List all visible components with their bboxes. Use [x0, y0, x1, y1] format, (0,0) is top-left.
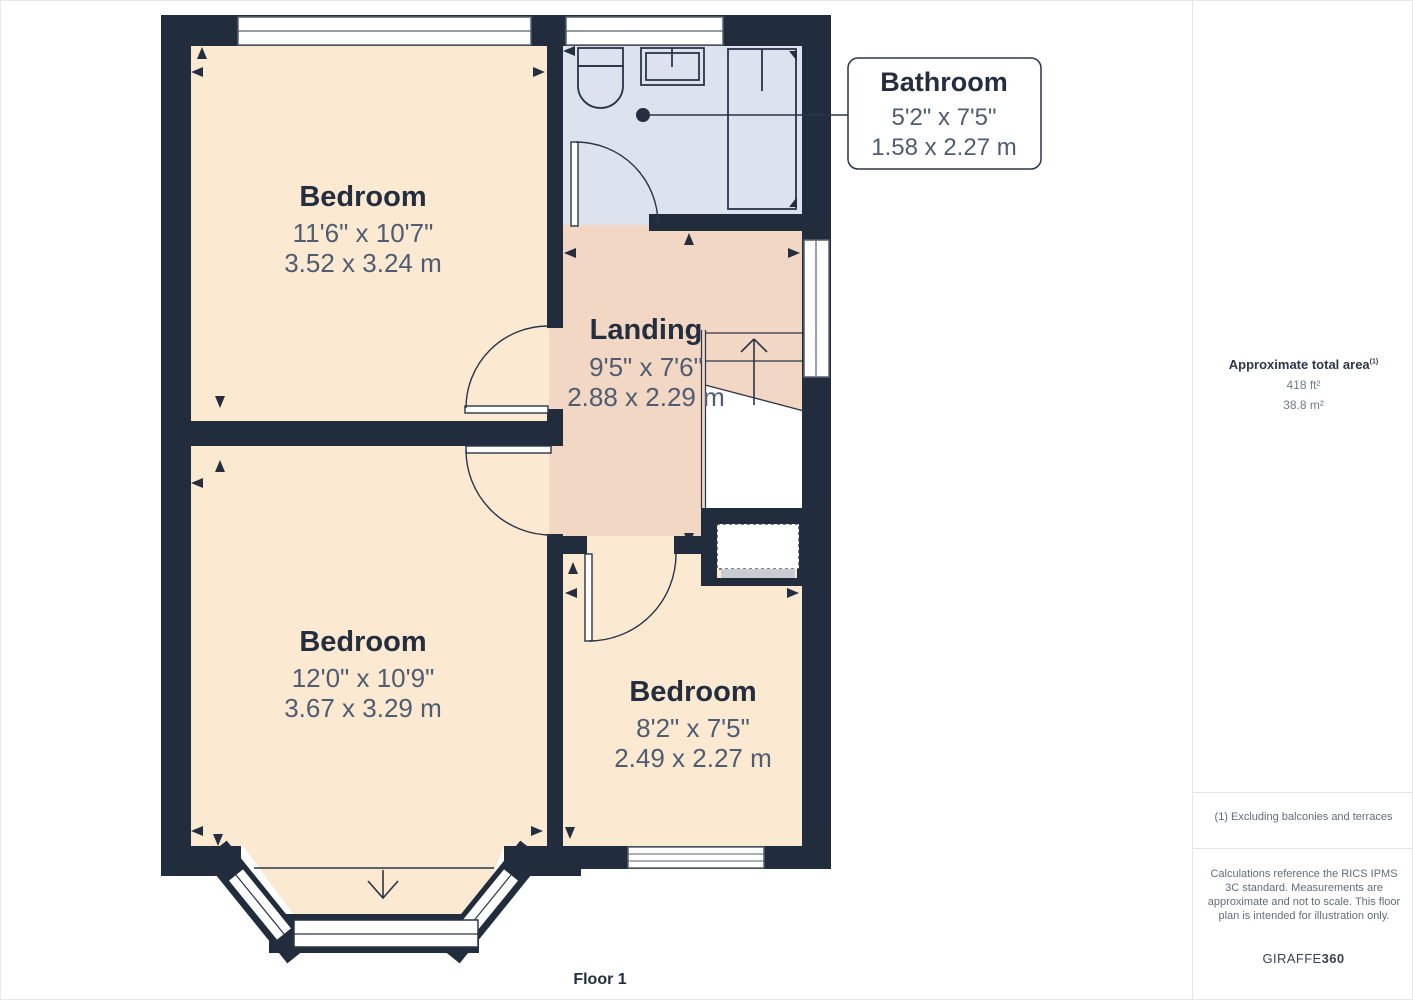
- room-label-bedroom-top-left: Bedroom: [299, 181, 426, 213]
- room-label-bedroom-bottom-right: Bedroom: [629, 676, 756, 708]
- callout-room-name: Bathroom: [880, 67, 1008, 97]
- total-area-title: Approximate total area(1): [1193, 357, 1413, 372]
- room-label-landing: Landing: [590, 314, 703, 346]
- area-footnote: (1) Excluding balconies and terraces: [1193, 811, 1413, 823]
- total-area-ft: 418 ft²: [1193, 378, 1413, 392]
- floorplan-page: Bedroom 11'6" x 10'7" 3.52 x 3.24 m Land…: [0, 0, 1413, 1000]
- sidebar-divider: [1193, 848, 1413, 849]
- callout-dim-metric: 1.58 x 2.27 m: [871, 134, 1016, 161]
- brand-suffix: 360: [1322, 951, 1345, 966]
- total-area-footnote-marker: (1): [1370, 359, 1379, 366]
- window-bottom-bedroom: [628, 847, 764, 868]
- room-dim-metric: 3.67 x 3.29 m: [284, 693, 442, 723]
- info-sidebar: Approximate total area(1) 418 ft² 38.8 m…: [1192, 1, 1413, 1000]
- disclaimer-text: Calculations reference the RICS IPMS 3C …: [1207, 867, 1401, 923]
- total-area-block: Approximate total area(1) 418 ft² 38.8 m…: [1193, 357, 1413, 412]
- total-area-title-text: Approximate total area: [1229, 357, 1370, 372]
- room-dim-imperial: 9'5" x 7'6": [589, 352, 703, 382]
- brand-name: GIRAFFE: [1262, 951, 1321, 966]
- room-dim-imperial: 8'2" x 7'5": [636, 713, 750, 743]
- bathroom-callout: Bathroom 5'2" x 7'5" 1.58 x 2.27 m: [848, 58, 1041, 169]
- room-dim-metric: 2.49 x 2.27 m: [614, 743, 772, 773]
- callout-dim-imperial: 5'2" x 7'5": [892, 104, 997, 131]
- brand-logo: GIRAFFE360: [1193, 951, 1413, 966]
- understairs-hatch: [717, 524, 799, 569]
- room-label-bedroom-bottom-left: Bedroom: [299, 626, 426, 658]
- room-dim-metric: 3.52 x 3.24 m: [284, 248, 442, 278]
- room-dim-metric: 2.88 x 2.29 m: [567, 382, 725, 412]
- floor-plan: Bedroom 11'6" x 10'7" 3.52 x 3.24 m Land…: [1, 1, 1192, 1000]
- room-dim-imperial: 11'6" x 10'7": [293, 218, 434, 248]
- sidebar-divider: [1193, 792, 1413, 793]
- total-area-m: 38.8 m²: [1193, 398, 1413, 412]
- understairs-step: [721, 569, 795, 578]
- bathroom-floor: [563, 46, 802, 225]
- room-dim-imperial: 12'0" x 10'9": [292, 663, 435, 693]
- floor-label: Floor 1: [573, 971, 626, 988]
